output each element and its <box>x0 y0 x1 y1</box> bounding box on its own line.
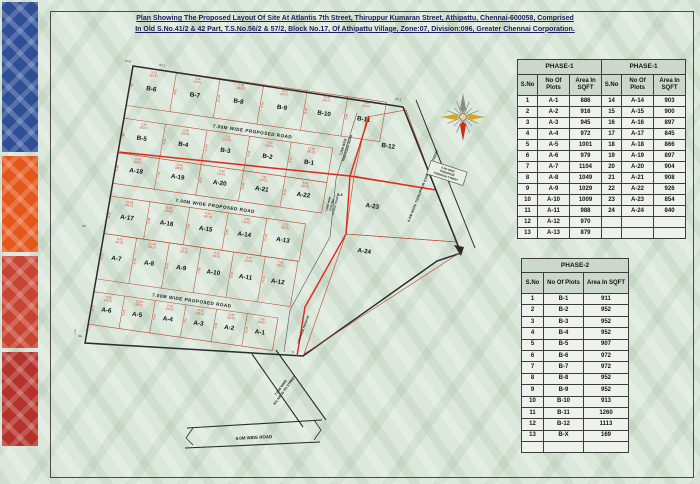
table-row: 13B-X169 <box>522 430 629 441</box>
phase1-cell: 8 <box>518 173 538 184</box>
dimension-label: 6.10 <box>282 189 287 195</box>
phase1-cell <box>654 228 686 239</box>
phase1-cell: 866 <box>654 140 686 151</box>
phase1-cell <box>622 217 654 228</box>
phase1-cell: 970 <box>570 217 602 228</box>
phase2-cell: 11 <box>522 407 544 418</box>
table-row: 10B-10913 <box>522 396 629 407</box>
dimension-label: (18.0') <box>242 220 251 225</box>
atlantis-street-label: 7.50M WIDEATLANTIS 7th STREET <box>269 372 297 406</box>
survey-marker: 43 <box>82 224 86 228</box>
plot-label: A-7 <box>111 255 123 263</box>
dimension-label: 8.53 <box>173 89 178 95</box>
plot-label: B-7 <box>189 91 201 99</box>
survey-marker: A1.1 <box>395 97 402 102</box>
road-end-arrow <box>314 420 321 440</box>
phase1-cell: 22 <box>602 184 622 195</box>
phase1-cell: A-13 <box>538 228 570 239</box>
phase1-cell: A-21 <box>622 173 654 184</box>
table-row: 2B-2952 <box>522 305 629 316</box>
dimension-label: (30.0') <box>175 166 184 171</box>
table-row: 5B-5907 <box>522 339 629 350</box>
survey-marker: 4A <box>78 334 82 338</box>
phase1-cell: 13 <box>518 228 538 239</box>
survey-marker: S <box>292 350 294 354</box>
plot-label: A-11 <box>238 273 253 282</box>
plot-label: B-2 <box>262 153 274 161</box>
dimension-label: (30.0') <box>149 73 158 78</box>
phase1-cell: 886 <box>570 96 602 107</box>
plot-label: A-24 <box>357 247 372 256</box>
road-end-arrow <box>186 428 193 445</box>
phase1-cell: A-3 <box>538 118 570 129</box>
table-row: 13A-13879 <box>518 228 686 239</box>
phase2-cell: B-10 <box>544 396 584 407</box>
phase2-table: PHASE-2 S.NoNo Of PlotsArea In SQFT 1B-1… <box>521 258 629 453</box>
phase1-cell: 24 <box>602 206 622 217</box>
phase1-cell: A-14 <box>622 96 654 107</box>
phase1-cell: A-15 <box>622 107 654 118</box>
plot-label: A-15 <box>198 225 213 234</box>
phase2-cell: B-6 <box>544 350 584 361</box>
phase1-cell: 17 <box>602 129 622 140</box>
plan-overlay: B-12A-23A-24B-X7.20M WIDEPROPOSED ROAD7.… <box>73 59 485 448</box>
plot-label: A-14 <box>237 230 252 239</box>
phase-boundary-line <box>118 152 436 190</box>
dimension-label: (26.0') <box>223 137 232 142</box>
phase1-col-header: No Of Plots <box>622 75 654 96</box>
table-row: 6B-6972 <box>522 350 629 361</box>
phase2-cell: 6 <box>522 350 544 361</box>
dimension-label: 1.14 <box>73 328 78 335</box>
table-row: 11A-1198824A-24840 <box>518 206 686 217</box>
phase1-cell <box>654 217 686 228</box>
phase1-cell: 12 <box>518 217 538 228</box>
vroad2-label: 7.30M WIDEEXISTINGLAYOUT ROAD <box>324 194 339 215</box>
phase2-cell: 8 <box>522 373 544 384</box>
compass-north-point <box>460 93 466 113</box>
dimension-label: (36.2') <box>134 302 143 307</box>
dimension-label: 11.04 <box>204 144 209 152</box>
phase1-header-row: S.NoNo Of PlotsArea In SQFTS.NoNo Of Plo… <box>518 75 686 96</box>
phase2-col-header: Area In SQFT <box>584 273 629 294</box>
plot-label: A-3 <box>193 320 205 328</box>
plot-label: A-1 <box>254 328 266 336</box>
dimension-label: (28.0') <box>265 143 274 148</box>
plot-label: A-4 <box>162 315 174 323</box>
dimension-label: (18.0') <box>227 315 236 320</box>
table-row: 9B-9952 <box>522 385 629 396</box>
phase1-col-header: Area In SQFT <box>570 75 602 96</box>
phase1-cell: A-10 <box>538 195 570 206</box>
phase1-cell: A-12 <box>538 217 570 228</box>
phase1-cell: 1001 <box>570 140 602 151</box>
phase1-cell: A-22 <box>622 184 654 195</box>
dimension-label: (28.0') <box>115 240 124 245</box>
phase2-cell: 972 <box>584 350 629 361</box>
phase1-cell: 21 <box>602 173 622 184</box>
table-row: 5A-5100118A-18866 <box>518 140 686 151</box>
dimension-label: (36.2') <box>322 98 331 103</box>
road-label: 9.0M WIDE ROAD <box>236 434 273 441</box>
plot-label: A-8 <box>143 259 155 267</box>
dimension-label: 7.92 <box>183 318 188 324</box>
phase1-cell: 1049 <box>570 173 602 184</box>
dimension-label: 7.92 <box>156 171 161 177</box>
plot-label: A-9 <box>176 264 188 272</box>
dimension-label: (36.2') <box>307 149 316 154</box>
phase2-cell: B-9 <box>544 385 584 396</box>
dimension-label: 11.04 <box>244 326 249 334</box>
phase1-cell: A-16 <box>622 118 654 129</box>
phase1-cell <box>602 228 622 239</box>
phase1-cell: 988 <box>570 206 602 217</box>
phase1-cell: 5 <box>518 140 538 151</box>
phase1-cell: A-20 <box>622 162 654 173</box>
table-row <box>522 442 629 453</box>
phase2-cell: 952 <box>584 373 629 384</box>
dimension-label: (28.0') <box>280 92 289 97</box>
dimension-label: (18.0') <box>217 172 226 177</box>
plot-label: A-2 <box>223 324 235 332</box>
phase1-cell: 926 <box>654 184 686 195</box>
phase1-cell: 18 <box>602 140 622 151</box>
phase1-cell: 900 <box>654 107 686 118</box>
dimension-label: 9.15 <box>303 107 308 113</box>
phase1-col-header: No Of Plots <box>538 75 570 96</box>
phase1-cell: 840 <box>654 206 686 217</box>
phase1-cell: 972 <box>570 129 602 140</box>
phase1-cell: 904 <box>654 162 686 173</box>
table-row: 3A-394516A-16897 <box>518 118 686 129</box>
phase1-cell: A-19 <box>622 151 654 162</box>
plot-label: A-17 <box>120 214 135 223</box>
plot-label: A-23 <box>365 202 380 211</box>
table-row: 11B-111260 <box>522 407 629 418</box>
phase1-col-header: Area In SQFT <box>654 75 686 96</box>
phase1-cell: 1009 <box>570 195 602 206</box>
phase1-cell: 979 <box>570 151 602 162</box>
phase2-cell: B-2 <box>544 305 584 316</box>
phase2-cell <box>544 442 584 453</box>
table-row: 6A-697919A-19897 <box>518 151 686 162</box>
table-row: 4A-497217A-17845 <box>518 129 686 140</box>
phase2-header-row: S.NoNo Of PlotsArea In SQFT <box>522 273 629 294</box>
phase2-cell: 4 <box>522 328 544 339</box>
phase1-cell: 15 <box>602 107 622 118</box>
phase1-cell: 1104 <box>570 162 602 173</box>
plot-outline <box>304 234 461 354</box>
road-line <box>187 420 322 428</box>
plot-label: B-6 <box>146 85 158 93</box>
phase2-cell: 3 <box>522 316 544 327</box>
phase1-cell: A-8 <box>538 173 570 184</box>
table-row: 10A-10100923A-23854 <box>518 195 686 206</box>
plot-label: B-9 <box>276 104 288 112</box>
plot-label: A-16 <box>159 219 174 228</box>
phase2-cell <box>522 442 544 453</box>
plot-label: A-6 <box>101 306 113 314</box>
dimension-label: 6.10 <box>260 101 265 107</box>
phase1-cell: 903 <box>654 96 686 107</box>
phase2-cell: 10 <box>522 396 544 407</box>
survey-marker: A1.1 <box>159 63 166 68</box>
phase1-cell: 4 <box>518 129 538 140</box>
compass-west-point <box>441 114 459 120</box>
dimension-label: (20.0') <box>165 307 174 312</box>
phase1-table: PHASE-1 PHASE-1 S.NoNo Of PlotsArea In S… <box>517 59 686 239</box>
dimension-label: 11.04 <box>216 94 221 102</box>
phase2-cell: 169 <box>584 430 629 441</box>
phase2-cell: 913 <box>584 396 629 407</box>
compass-center <box>460 114 467 121</box>
dimension-label: (36.2') <box>148 244 157 249</box>
phase1-cell: A-4 <box>538 129 570 140</box>
dimension-label: 8.53 <box>225 228 230 234</box>
table-row: 8B-8952 <box>522 373 629 384</box>
phase1-cell: A-23 <box>622 195 654 206</box>
dimension-label: (26.0') <box>259 178 268 183</box>
phase1-cell: 16 <box>602 118 622 129</box>
phase1-cell <box>622 228 654 239</box>
table-row: 3B-3952 <box>522 316 629 327</box>
phase1-cell: 897 <box>654 151 686 162</box>
phase1-cell: 879 <box>570 228 602 239</box>
phase2-cell: 1 <box>522 294 544 305</box>
phase1-cell: A-6 <box>538 151 570 162</box>
table-row: 2A-291615A-15900 <box>518 107 686 118</box>
phase1-cell: A-9 <box>538 184 570 195</box>
road-label: 7.00M WIDE PROPOSED ROAD <box>152 292 232 308</box>
phase1-cell: 916 <box>570 107 602 118</box>
phase1-cell: 945 <box>570 118 602 129</box>
dimension-label: 9.15 <box>121 309 126 315</box>
phase1-cell: 23 <box>602 195 622 206</box>
compass-east-point <box>467 114 485 120</box>
phase1-cell: 7 <box>518 162 538 173</box>
phase1-cell: 9 <box>518 184 538 195</box>
dimension-label: 11.04 <box>240 182 245 190</box>
table-row: 12B-121113 <box>522 419 629 430</box>
plot-label: A-10 <box>206 268 221 277</box>
dimension-label: 5.49 <box>152 314 157 320</box>
plot-grid: B-69.15(30.0')7.92B-75.49(18.0')8.53B-87… <box>88 66 386 360</box>
dimension-label: (18.0') <box>181 131 190 136</box>
phase2-cell: 952 <box>584 385 629 396</box>
phase1-cell: 11 <box>518 206 538 217</box>
dimension-label: (28.0') <box>301 184 310 189</box>
plot-label: B-X <box>337 193 343 197</box>
phase1-cell: 854 <box>654 195 686 206</box>
plot-label: B-8 <box>233 98 245 106</box>
phase2-cell: 1260 <box>584 407 629 418</box>
plot-label: A-5 <box>131 311 143 319</box>
dimension-label: (26.0') <box>257 320 266 325</box>
phase1-cell: A-17 <box>622 129 654 140</box>
phase1-cell: 2 <box>518 107 538 118</box>
phase1-cell: A-1 <box>538 96 570 107</box>
dimension-label: (30.0') <box>203 214 212 219</box>
phase2-cell: B-11 <box>544 407 584 418</box>
dimension-label: 8.53 <box>229 272 234 278</box>
dimension-label: (20.0') <box>164 209 173 214</box>
compass-south-point <box>460 121 466 141</box>
phase2-col-header: No Of Plots <box>544 273 584 294</box>
phase2-cell: B-4 <box>544 328 584 339</box>
table-row: 1B-1911 <box>522 294 629 305</box>
table-row: 1A-188614A-14903 <box>518 96 686 107</box>
plot-label: B-1 <box>303 159 315 167</box>
dimension-label: 11.04 <box>263 233 268 241</box>
dimension-label: (30.0') <box>212 254 221 259</box>
phase1-cell: A-2 <box>538 107 570 118</box>
phase2-cell <box>584 442 629 453</box>
dimension-label: 11.04 <box>261 275 266 283</box>
phase1-cell: 1029 <box>570 184 602 195</box>
phase1-col-header: S.No <box>602 75 622 96</box>
phase2-cell: 5 <box>522 339 544 350</box>
dimension-label: (30.0') <box>196 311 205 316</box>
table-row: 12A-12970 <box>518 217 686 228</box>
phase2-cell: B-8 <box>544 373 584 384</box>
plot-label: B-5 <box>136 135 148 143</box>
phase1-cell: 10 <box>518 195 538 206</box>
dimension-label: (30.0') <box>139 125 148 130</box>
dimension-label: (18.0') <box>193 79 202 84</box>
phase2-cell: 952 <box>584 316 629 327</box>
dimension-label: 7.92 <box>197 267 202 273</box>
phase1-cell <box>602 217 622 228</box>
layout-plan-page: Plan Showing The Proposed Layout Of Site… <box>0 0 700 484</box>
plot-label: A-19 <box>170 173 185 182</box>
phase2-cell: B-7 <box>544 362 584 373</box>
dimension-label: 5.49 <box>344 113 349 119</box>
phase1-cell: 14 <box>602 96 622 107</box>
dimension-label: (36.2') <box>125 203 134 208</box>
phase1-cell: 19 <box>602 151 622 162</box>
phase2-cell: 12 <box>522 419 544 430</box>
phase1-cell: A-5 <box>538 140 570 151</box>
dimension-label: 9.15 <box>288 156 293 162</box>
phase1-cell: A-24 <box>622 206 654 217</box>
phase1-title-left: PHASE-1 <box>518 60 602 75</box>
phase1-cell: 3 <box>518 118 538 129</box>
phase2-cell: 2 <box>522 305 544 316</box>
plot-label: B-3 <box>220 147 232 155</box>
dimension-label: (18.0') <box>244 258 253 263</box>
dimension-label: (26.0') <box>236 86 245 91</box>
plot-label: A-12 <box>270 278 285 287</box>
phase1-cell: A-18 <box>622 140 654 151</box>
dimension-label: 6.10 <box>246 150 251 156</box>
plot-label: A-22 <box>296 191 311 200</box>
table-row: 8A-8104921A-21908 <box>518 173 686 184</box>
dimension-label: (20.0') <box>180 249 189 254</box>
phase1-title-right: PHASE-1 <box>602 60 686 75</box>
dimension-label: 8.53 <box>198 177 203 183</box>
plot-label: B-10 <box>317 110 332 119</box>
phase2-cell: B-12 <box>544 419 584 430</box>
dimension-label: 8.53 <box>213 322 218 328</box>
dimension-label: 5.49 <box>165 262 170 268</box>
road-label: 7.00M WIDE PROPOSED ROAD <box>175 198 255 214</box>
phase1-cell: 845 <box>654 129 686 140</box>
phase2-cell: 7 <box>522 362 544 373</box>
dimension-label: (20.0') <box>133 160 142 165</box>
dimension-label: 9.15 <box>132 258 137 264</box>
phase2-cell: 952 <box>584 328 629 339</box>
phase2-cell: B-3 <box>544 316 584 327</box>
plot-label: B-4 <box>178 141 190 149</box>
phase1-cell: 908 <box>654 173 686 184</box>
dimension-label: 5.49 <box>146 217 151 223</box>
phase2-title: PHASE-2 <box>522 259 629 273</box>
phase1-cell: A-7 <box>538 162 570 173</box>
survey-marker: A1.0 <box>125 59 132 64</box>
compass-rose <box>441 93 485 141</box>
table-row: 9A-9102922A-22926 <box>518 184 686 195</box>
phase2-cell: B-X <box>544 430 584 441</box>
phase2-cell: 952 <box>584 305 629 316</box>
table-row: 4B-4952 <box>522 328 629 339</box>
phase2-col-header: S.No <box>522 273 544 294</box>
plot-outline <box>346 176 457 242</box>
phase1-cell: 897 <box>654 118 686 129</box>
table-row: 7A-7110420A-20904 <box>518 162 686 173</box>
plot-label: A-18 <box>129 167 144 176</box>
phase2-cell: 13 <box>522 430 544 441</box>
plot-label: A-13 <box>276 236 291 245</box>
plot-label: B-12 <box>381 142 396 151</box>
phase1-col-header: S.No <box>518 75 538 96</box>
phase2-cell: 911 <box>584 294 629 305</box>
phase2-cell: 9 <box>522 385 544 396</box>
phase2-cell: 972 <box>584 362 629 373</box>
phase1-cell: 20 <box>602 162 622 173</box>
dimension-label: 8.53 <box>162 138 167 144</box>
dimension-label: (20.0') <box>362 103 371 108</box>
phase2-cell: 907 <box>584 339 629 350</box>
phase2-cell: B-5 <box>544 339 584 350</box>
dimension-label: 7.92 <box>186 223 191 229</box>
phase2-cell: B-1 <box>544 294 584 305</box>
plot-label: A-20 <box>212 179 227 188</box>
table-row: 7B-7972 <box>522 362 629 373</box>
road-line <box>185 442 320 448</box>
phase1-cell: 6 <box>518 151 538 162</box>
phase1-cell: A-11 <box>538 206 570 217</box>
dimension-label: (26.0') <box>281 225 290 230</box>
dimension-label: (28.0') <box>104 298 113 303</box>
phase2-cell: 1113 <box>584 419 629 430</box>
dimension-label: (26.0') <box>276 263 285 268</box>
phase1-cell: 1 <box>518 96 538 107</box>
plot-label: A-21 <box>254 185 269 194</box>
